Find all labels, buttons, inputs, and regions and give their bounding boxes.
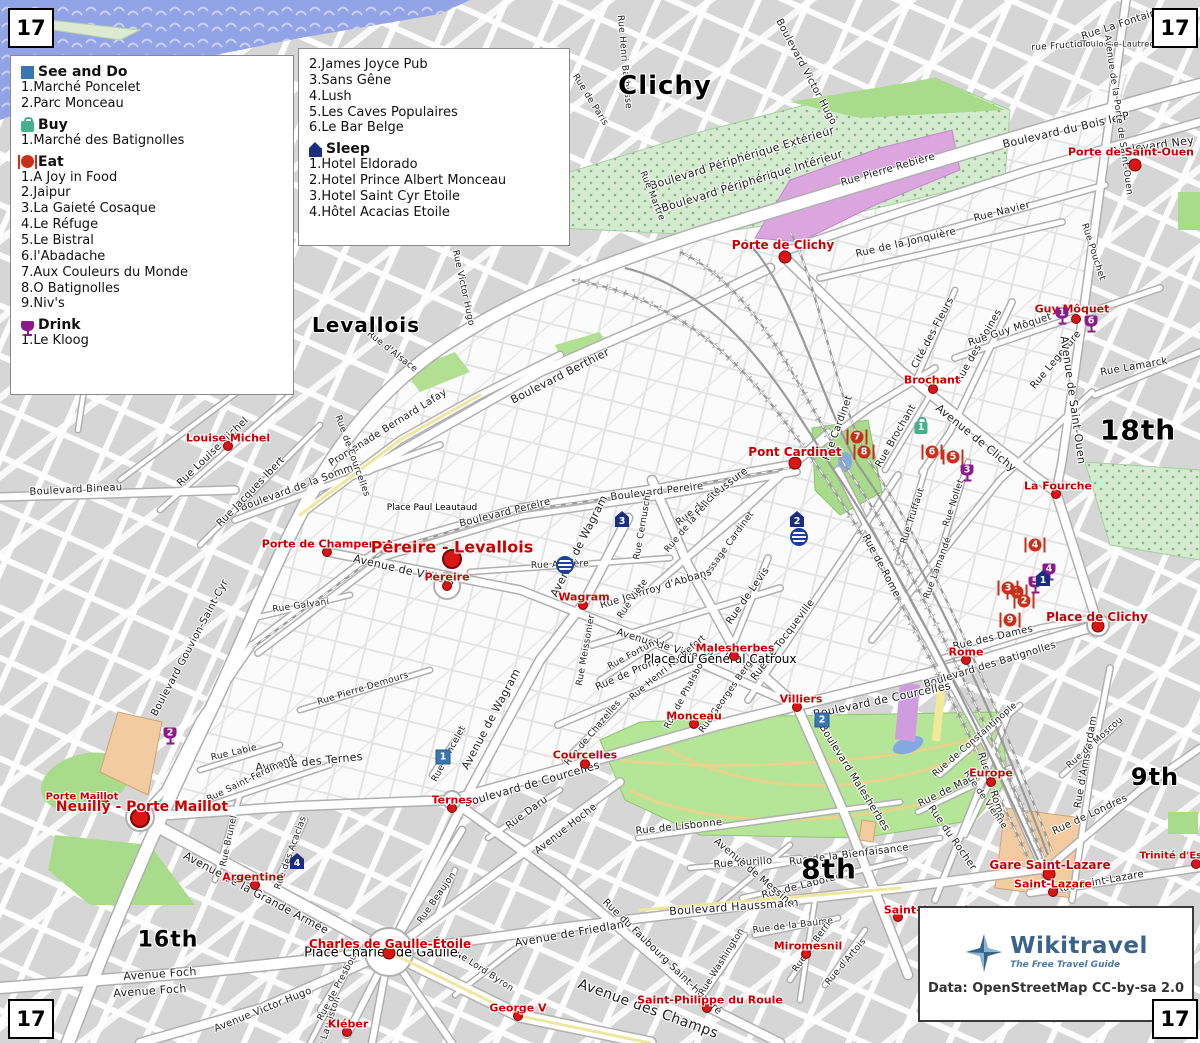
legend-title-text: Drink <box>38 317 81 333</box>
corner-label-top-right: 17 <box>1152 8 1198 48</box>
paris-17-arrondissement-map[interactable]: Boulevard Périphérique ExtérieurBoulevar… <box>0 0 1200 1043</box>
metro-station-label: Europe <box>969 767 1013 780</box>
poi-number: 1 <box>918 423 925 433</box>
metro-station-label: Saint-Philippe du Roule <box>637 994 783 1007</box>
street-label: Rue de Londres <box>1051 793 1130 837</box>
legend-item: 1.Le Kloog <box>21 333 283 349</box>
street-label: Boulevard Berthier <box>508 345 611 406</box>
metro-station-label: Argentine <box>222 871 283 884</box>
poi-number: 4 <box>1032 540 1039 550</box>
poi-number: 3 <box>964 465 971 475</box>
metro-station-label: Malesherbes <box>696 642 775 655</box>
district-label: 18th <box>1100 414 1176 447</box>
street-label: Rue du Rocher <box>926 803 979 872</box>
poi-number: 3 <box>619 517 626 527</box>
street-label: Rue Pierre Demours <box>316 670 410 707</box>
eat-marker-6: 6 <box>926 446 939 459</box>
metro-station-label: Villiers <box>780 693 823 706</box>
poi-number: 9 <box>1007 615 1014 625</box>
legend-item: 2.Parc Monceau <box>21 96 283 112</box>
drink-marker-3: 3 <box>961 465 974 476</box>
poi-number: 2 <box>167 728 174 738</box>
metro-station-label: Charles de Gaulle-Étoile <box>309 937 471 951</box>
street-label: Avenue de Wagram <box>459 666 523 771</box>
legend-item: 1.Hotel Eldorado <box>309 157 559 173</box>
sleep-marker-3: 3 <box>615 517 629 527</box>
legend-item: 1.Marché Poncelet <box>21 80 283 96</box>
eat-marker-4: 4 <box>1029 539 1042 552</box>
metro-station-label: Ternes <box>432 794 473 807</box>
metro-station-label: Pereire - Levallois <box>371 538 534 557</box>
street-label: Rue de Tocqueville <box>749 597 817 682</box>
district-label: 8th <box>801 853 857 886</box>
legend-item: 6.l'Abadache <box>21 249 283 265</box>
poi-number: 1 <box>1059 308 1066 318</box>
street-label: Avenue de la Grande Armée <box>181 849 331 937</box>
street-label: Rue Daru <box>504 794 550 832</box>
legend-item: 3.Sans Gêne <box>309 73 559 89</box>
eat-marker-3: 3 <box>1002 582 1015 595</box>
street-label: Rue Louise Michel <box>175 415 251 489</box>
corner-label-bottom-left: 17 <box>8 999 54 1039</box>
legend-section-title: Buy <box>21 117 283 133</box>
legend-section-title: Drink <box>21 317 283 333</box>
street-label: Rue de la Jonquière <box>855 226 958 260</box>
legend-item: 9.Niv's <box>21 296 283 312</box>
metro-station-label: Pont Cardinet <box>748 445 841 459</box>
metro-station-dot <box>1129 159 1142 172</box>
street-label: Rue de Levis <box>724 565 771 626</box>
street-label: Rue des Moines <box>954 308 1005 385</box>
legend-item: 2.Jaipur <box>21 185 283 201</box>
legend-item: 8.O Batignolles <box>21 281 283 297</box>
metro-station-label: Trinité d'Estienne d'Orves <box>1139 851 1200 862</box>
metro-station-label: Place de Clichy <box>1046 610 1148 624</box>
eat-marker-8: 8 <box>858 446 871 459</box>
metro-station-label: Pereire <box>424 571 469 584</box>
street-label: Rue Navier <box>973 200 1032 225</box>
legend-title-text: Sleep <box>326 141 370 157</box>
street-label: Rue de Paris <box>570 72 610 127</box>
eat-marker-9: 9 <box>1004 614 1017 627</box>
legend-item: 1.A Joy in Food <box>21 170 283 186</box>
sleep-marker-4: 4 <box>290 859 304 869</box>
metro-station-label: Kléber <box>328 1018 369 1031</box>
metro-station-dot <box>779 251 792 264</box>
metro-station-label: Guy Môquet <box>1035 303 1110 316</box>
street-label: Avenue Foch <box>123 965 197 983</box>
street-label: Rue Washington <box>697 927 746 998</box>
street-label: Rue Truffaut <box>899 487 927 545</box>
street-label: Rue Labie <box>210 743 258 763</box>
street-label: Rue Guy Môquet <box>967 311 1053 348</box>
metro-station-label: Brochant <box>904 374 960 387</box>
street-label: Rue Pierre Rebière <box>840 151 937 188</box>
metro-station-label: Gare Saint-Lazare <box>989 858 1110 872</box>
place-label: Place Paul Leautaud <box>387 503 477 513</box>
legend-title-text: See and Do <box>38 64 128 80</box>
drink-marker-2: 2 <box>164 728 177 739</box>
legend-title-text: Eat <box>38 154 64 170</box>
legend-section-title: Eat <box>21 154 283 170</box>
corner-label-top-left: 17 <box>8 8 54 48</box>
street-label: Boulevard Pereire <box>458 496 551 529</box>
street-label: Avenue de Wagram <box>548 493 611 599</box>
district-label: Clichy <box>618 71 712 101</box>
brand-tagline: The Free Travel Guide <box>1010 960 1148 970</box>
poi-number: 6 <box>929 447 936 457</box>
street-label: Rue Lamarck <box>1099 356 1168 379</box>
legend-item: 2.James Joyce Pub <box>309 57 559 73</box>
legend-item: 1.Marché des Batignolles <box>21 133 283 149</box>
legend-item: 4.Lush <box>309 89 559 105</box>
street-label: Rue Victor Hugo <box>450 249 476 327</box>
legend-item: 4.Le Réfuge <box>21 217 283 233</box>
sleep-marker-2: 2 <box>790 517 804 527</box>
legend-box-secondary: 2.James Joyce Pub3.Sans Gêne4.Lush5.Les … <box>298 48 570 246</box>
street-label: Avenue Foch <box>113 982 187 1000</box>
street-label: Rue Nollet <box>942 478 967 528</box>
poi-number: 6 <box>1088 316 1095 326</box>
street-label: Avenue de Friedland <box>514 916 632 949</box>
eat-marker-2: 2 <box>1018 595 1031 608</box>
street-label: Rue Pouchet <box>1079 222 1107 281</box>
drink-legend-icon <box>21 321 34 331</box>
poi-number: 1 <box>440 752 447 762</box>
legend-item: 4.Hôtel Acacias Etoile <box>309 205 559 221</box>
street-label: Rue Lamandé <box>922 536 954 601</box>
poi-number: 2 <box>819 715 826 725</box>
street-label: Boulevard Pereire <box>610 481 704 503</box>
legend-box-primary: See and Do1.Marché Poncelet2.Parc Moncea… <box>10 55 294 395</box>
legend-item: 7.Aux Couleurs du Monde <box>21 265 283 281</box>
district-label: 9th <box>1131 763 1179 791</box>
metro-station-label: Louise Michel <box>186 432 270 445</box>
street-label: Rue Brochant <box>874 403 919 470</box>
metro-station-dot <box>1071 314 1081 324</box>
legend-item: 6.Le Bar Belge <box>309 120 559 136</box>
street-label: Rue de la Félicité <box>663 485 723 554</box>
street-label: Boulevard Victor Hugo <box>773 17 838 127</box>
street-label: Rue Galvani <box>272 597 330 615</box>
metro-station-label: Courcelles <box>553 749 617 762</box>
see-marker-1: 1 <box>436 750 451 765</box>
poi-number: 7 <box>854 432 861 442</box>
street-label: Avenue de Saint-Ouen <box>1058 335 1089 465</box>
street-label: Rue de Lisbonne <box>635 817 723 837</box>
poi-number: 2 <box>1021 596 1028 606</box>
metro-station-label: George V <box>489 1002 546 1015</box>
legend-item: 3.Hotel Saint Cyr Etoile <box>309 189 559 205</box>
street-label: Avenue Hoche <box>533 801 599 856</box>
district-label: 16th <box>138 928 199 953</box>
drink-marker-6: 6 <box>1085 316 1098 327</box>
buy-legend-icon <box>21 121 34 132</box>
poi-number: 2 <box>794 517 801 527</box>
metro-station-label: Miromesnil <box>774 940 843 953</box>
legend-item: 5.Les Caves Populaires <box>309 105 559 121</box>
metro-station-label: Porte de Saint-Ouen <box>1068 146 1194 159</box>
poi-number: 3 <box>1005 583 1012 593</box>
street-label: Boulevard Bineau <box>29 482 123 498</box>
street-label: Boulevard de Courcelles <box>812 679 952 721</box>
street-label: Rue Brunel <box>219 814 240 867</box>
street-label: Rue Cernuschi <box>632 491 654 560</box>
eat-legend-icon <box>21 155 34 168</box>
drink-marker-1: 1 <box>1056 308 1069 319</box>
district-label: Levallois <box>312 313 420 337</box>
poi-number: 4 <box>294 859 301 869</box>
street-label: Rue Jouffroy d'Abbans <box>599 567 713 612</box>
street-label: Avenue Victor Hugo <box>213 985 314 1034</box>
metro-station-label: Neuilly - Porte Maillot <box>56 799 228 815</box>
see-marker-2: 2 <box>815 713 830 728</box>
metro-station-label: La Fourche <box>1024 480 1092 493</box>
legend-item: 5.Le Bistral <box>21 233 283 249</box>
sleep-marker-1: 1 <box>1036 576 1050 586</box>
sleep-legend-icon <box>309 148 322 157</box>
street-label: Boulevard Malesherbes <box>817 723 892 833</box>
legend-section-title: Sleep <box>309 141 559 157</box>
metro-station-label: Monceau <box>666 710 722 723</box>
poi-number: 1 <box>1040 576 1047 586</box>
street-label: Cité des Fleurs <box>910 296 957 371</box>
legend-title-text: Buy <box>38 117 68 133</box>
corner-label-bottom-right: 17 <box>1152 999 1198 1039</box>
eat-marker-5: 5 <box>947 451 960 464</box>
railway-station-icon <box>790 528 808 546</box>
legend-section-title: See and Do <box>21 64 283 80</box>
street-label: Rue Beaujon <box>416 871 459 926</box>
street-label: Avenue de Clichy <box>933 402 1019 475</box>
legend-item: 2.Hotel Prince Albert Monceau <box>309 173 559 189</box>
eat-marker-7: 7 <box>851 431 864 444</box>
poi-number: 5 <box>950 452 957 462</box>
legend-item: 3.La Gaieté Cosaque <box>21 201 283 217</box>
metro-station-label: Wagram <box>558 591 609 604</box>
buy-marker-1: 1 <box>915 422 928 434</box>
street-label: Boulevard Gouvion-Saint-Cyr <box>149 578 231 718</box>
brand-name: Wikitravel <box>1010 935 1148 958</box>
street-label: Toulouse-Lautrec <box>1082 40 1154 49</box>
metro-station-label: Porte de Clichy <box>732 238 834 252</box>
data-attribution: Data: OpenStreetMap CC-by-sa 2.0 <box>928 981 1184 996</box>
railway-station-icon <box>556 556 574 574</box>
street-label: Rue de Rome <box>860 533 902 600</box>
metro-station-label: Rome <box>949 646 984 659</box>
street-label: Rue Meissonier <box>575 614 597 687</box>
see-legend-icon <box>21 66 34 79</box>
metro-station-label: Saint-Lazare <box>1014 878 1092 891</box>
poi-number: 8 <box>861 447 868 457</box>
wikitravel-logo-icon <box>964 933 1004 973</box>
